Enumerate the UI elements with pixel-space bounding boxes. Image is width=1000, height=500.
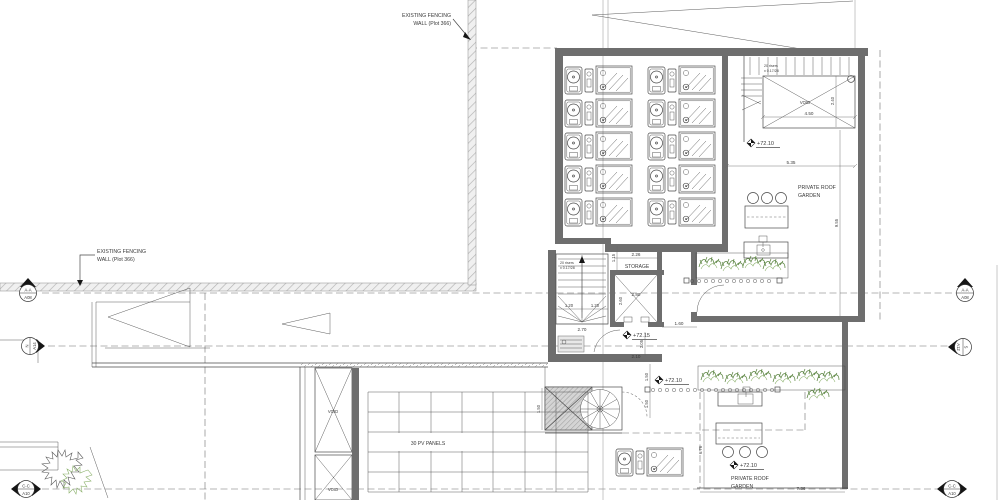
door-swing-arc [697,285,724,312]
marker-sheet: A12 [956,343,961,351]
fence-annotation-top: EXISTING FENCING WALL (Plot 366) [402,13,471,40]
dim-955: 9.55 [834,218,839,227]
level-bottom-garden: +72.10 [740,463,757,469]
storage-label: STORAGE [625,264,650,270]
railing-posts-lower [645,387,780,392]
marker-sheet: A08 [961,295,969,300]
dim-280: 2.80 [632,292,641,297]
garden-label-line2: GARDEN [798,193,820,199]
level-top-garden: +72.10 [757,141,774,147]
slope-triangle-left-1 [108,288,190,347]
section-marker-cc-right: C-C A10 [937,481,967,498]
grid-lines [42,0,997,500]
garden-label-line1: PRIVATE ROOF [731,476,769,482]
pv-panels-label: 30 PV PANELS [411,441,446,447]
sink-counter [744,236,788,258]
ac-unit [648,99,715,127]
elevation-marker-s-right: S A12 [948,339,972,356]
level-core: +72.15 [633,333,650,339]
core-landing: +72.15 1.60 2.05 2.10 +72.10 1.50 1.50 [614,321,697,418]
dim-736: 7.36 [797,486,806,491]
ac-unit [565,99,632,127]
elevation-marker-n-left: N A14 [22,338,46,355]
existing-fence-wall [0,0,476,291]
marker-name: C-C [948,484,955,489]
stair-direction-arrow-icon [579,256,585,263]
garden-label-line2: GARDEN [731,484,753,490]
dim-676: 6.76 [698,445,703,454]
fence-annotation-left-line1: EXISTING FENCING [97,249,146,255]
ac-unit [648,198,715,226]
lower-left-terrace [0,302,210,470]
marker-sheet: A08 [24,295,32,300]
section-marker-aa-left: A-A A08 [20,278,37,302]
dim-120a: 1.20 [565,303,574,308]
marker-sheet: A10 [948,491,956,496]
roof-access-stair: 20 risers x 0.17/28 VOID [741,56,855,142]
spiral-stair-zone: 1.50 [536,367,647,433]
elevator-shaft: 2.80 2.60 [610,270,664,327]
marker-name: A-A [962,288,969,293]
stair-note-line1: 20 risers [764,64,778,68]
roof-plan-drawing: EXISTING FENCING WALL (Plot 366) EXISTIN… [0,0,1000,500]
garden-label-line1: PRIVATE ROOF [798,185,836,191]
marker-name: S [964,346,969,349]
planter-lower [698,366,845,400]
railing-posts-upper [684,278,782,283]
stools [723,447,768,458]
ac-unit [616,448,683,476]
spiral-stair [581,390,620,429]
door-swing-arc [594,330,620,352]
stair-note-line2: x 0.17/28 [560,266,575,270]
planter-upper [696,253,788,278]
bbq-counter [745,193,788,229]
dim-210: 2.10 [632,354,641,359]
dim-205: 2.05 [639,339,644,348]
ac-unit [565,165,632,193]
level-marker-icon [730,461,738,469]
dim-150c: 1.50 [536,404,541,413]
level-marker-icon [655,376,663,384]
floor-plan-sheet: EXISTING FENCING WALL (Plot 366) EXISTIN… [0,0,1000,500]
dim-150a: 1.50 [644,372,649,381]
stair-note-line2: x 0.17/28 [764,69,779,73]
dim-260: 2.60 [618,296,623,305]
dim-450: 4.50 [805,111,814,116]
slope-triangle-top [592,1,853,52]
ac-unit [648,66,715,94]
ac-unit [565,66,632,94]
stair-note-line1: 20 risers [560,261,574,265]
marker-sheet: A14 [32,342,37,350]
dim-120b: 1.20 [591,303,600,308]
lower-building: VOID VOID [92,363,548,500]
level-marker-icon [747,139,755,147]
void-label: VOID [328,487,338,492]
ac-unit [648,132,715,160]
fence-annotation-top-line1: EXISTING FENCING [402,13,451,19]
marker-name: N [25,344,30,347]
marker-name: A-A [25,288,32,293]
ac-unit [565,132,632,160]
marker-name: C-C [22,484,29,489]
fence-annotation-left: EXISTING FENCING WALL (Plot 366) [77,249,146,286]
dim-226: 2.26 [632,252,641,257]
fence-annotation-top-line2: WALL (Plot 366) [413,21,451,27]
level-marker-icon [623,331,631,339]
void-shaft-2: VOID [315,455,352,500]
void-label: VOID [328,409,338,414]
water-heater [558,336,584,352]
level-landing: +72.10 [665,378,682,384]
tree-plant [42,447,108,498]
ac-unit [565,198,632,226]
section-marker-cc-left: C-C A10 [11,481,41,498]
dim-115: 1.15 [611,253,616,262]
dim-535: 5.35 [787,160,796,165]
void-shaft-1: VOID [315,368,352,452]
section-marker-aa-right: A-A A08 [957,278,974,302]
fence-annotation-left-line2: WALL (Plot 366) [97,257,135,263]
ac-unit [648,165,715,193]
slope-triangle-left-2 [282,313,330,334]
dim-160: 1.60 [675,321,684,326]
bench-table [716,423,762,444]
marker-sheet: A10 [22,491,30,496]
bottom-roof-garden: +72.10 PRIVATE ROOF GARDEN 6.76 7.36 [698,366,845,492]
dim-240: 2.40 [830,96,835,105]
void-label: VOID [800,100,810,105]
dim-270: 2.70 [578,327,587,332]
